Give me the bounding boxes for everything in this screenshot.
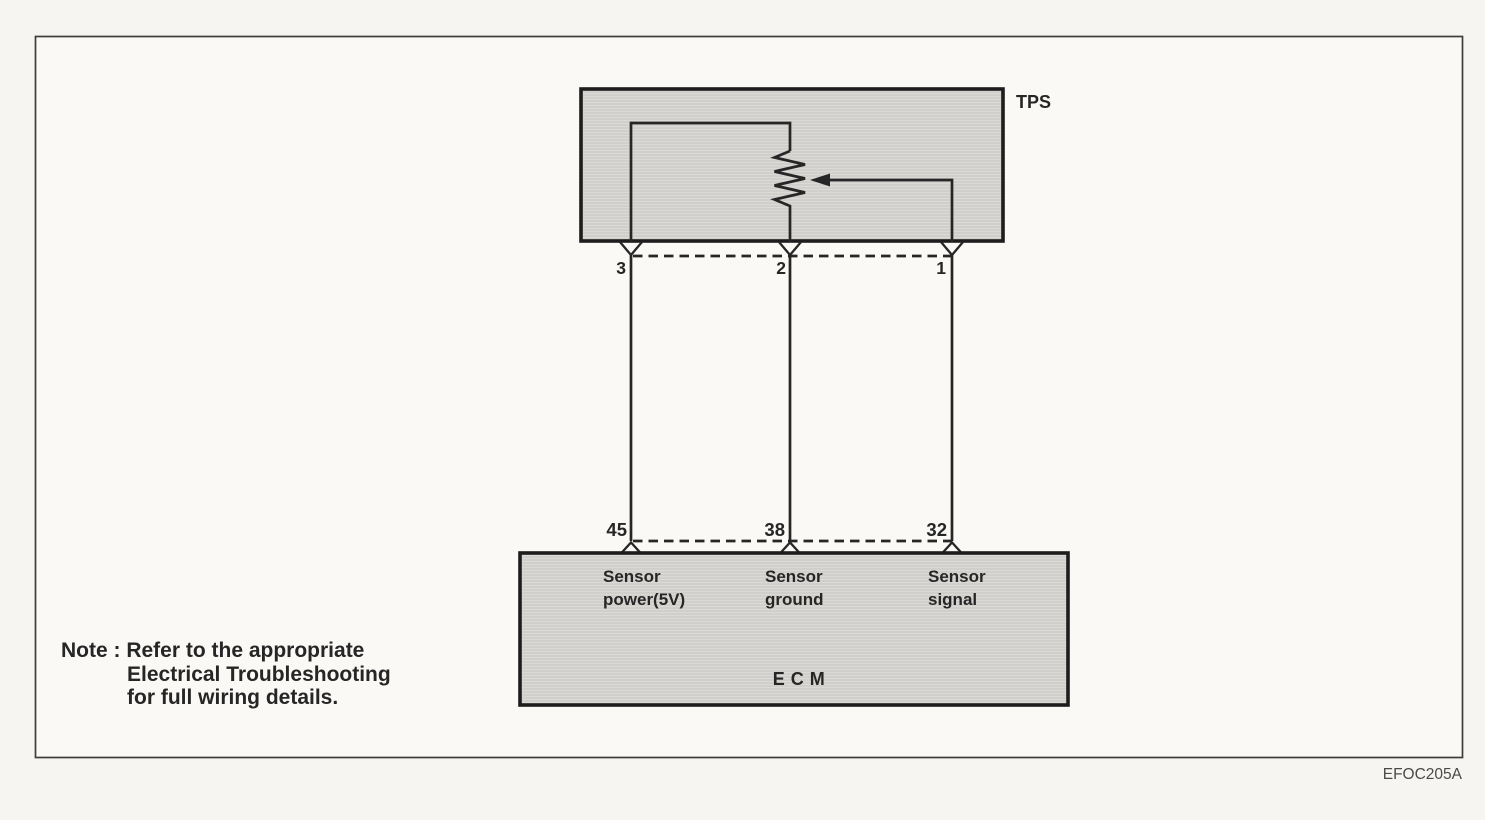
svg-text:signal: signal: [928, 590, 977, 609]
svg-text:Sensor: Sensor: [603, 567, 661, 586]
svg-text:2: 2: [776, 258, 786, 278]
svg-text:TPS: TPS: [1016, 92, 1051, 112]
svg-text:EFOC205A: EFOC205A: [1383, 766, 1463, 783]
svg-text:3: 3: [616, 258, 626, 278]
svg-text:E C M: E C M: [773, 669, 826, 689]
svg-text:32: 32: [926, 519, 947, 540]
svg-text:for full wiring details.: for full wiring details.: [127, 686, 338, 709]
svg-text:Sensor: Sensor: [765, 567, 823, 586]
svg-text:1: 1: [936, 258, 946, 278]
svg-text:45: 45: [606, 519, 627, 540]
svg-text:Sensor: Sensor: [928, 567, 986, 586]
svg-text:ground: ground: [765, 590, 824, 609]
svg-text:Note : Refer to the appropriat: Note : Refer to the appropriate: [61, 639, 364, 662]
svg-text:power(5V): power(5V): [603, 590, 685, 609]
svg-text:Electrical Troubleshooting: Electrical Troubleshooting: [127, 663, 391, 686]
svg-text:38: 38: [764, 519, 785, 540]
